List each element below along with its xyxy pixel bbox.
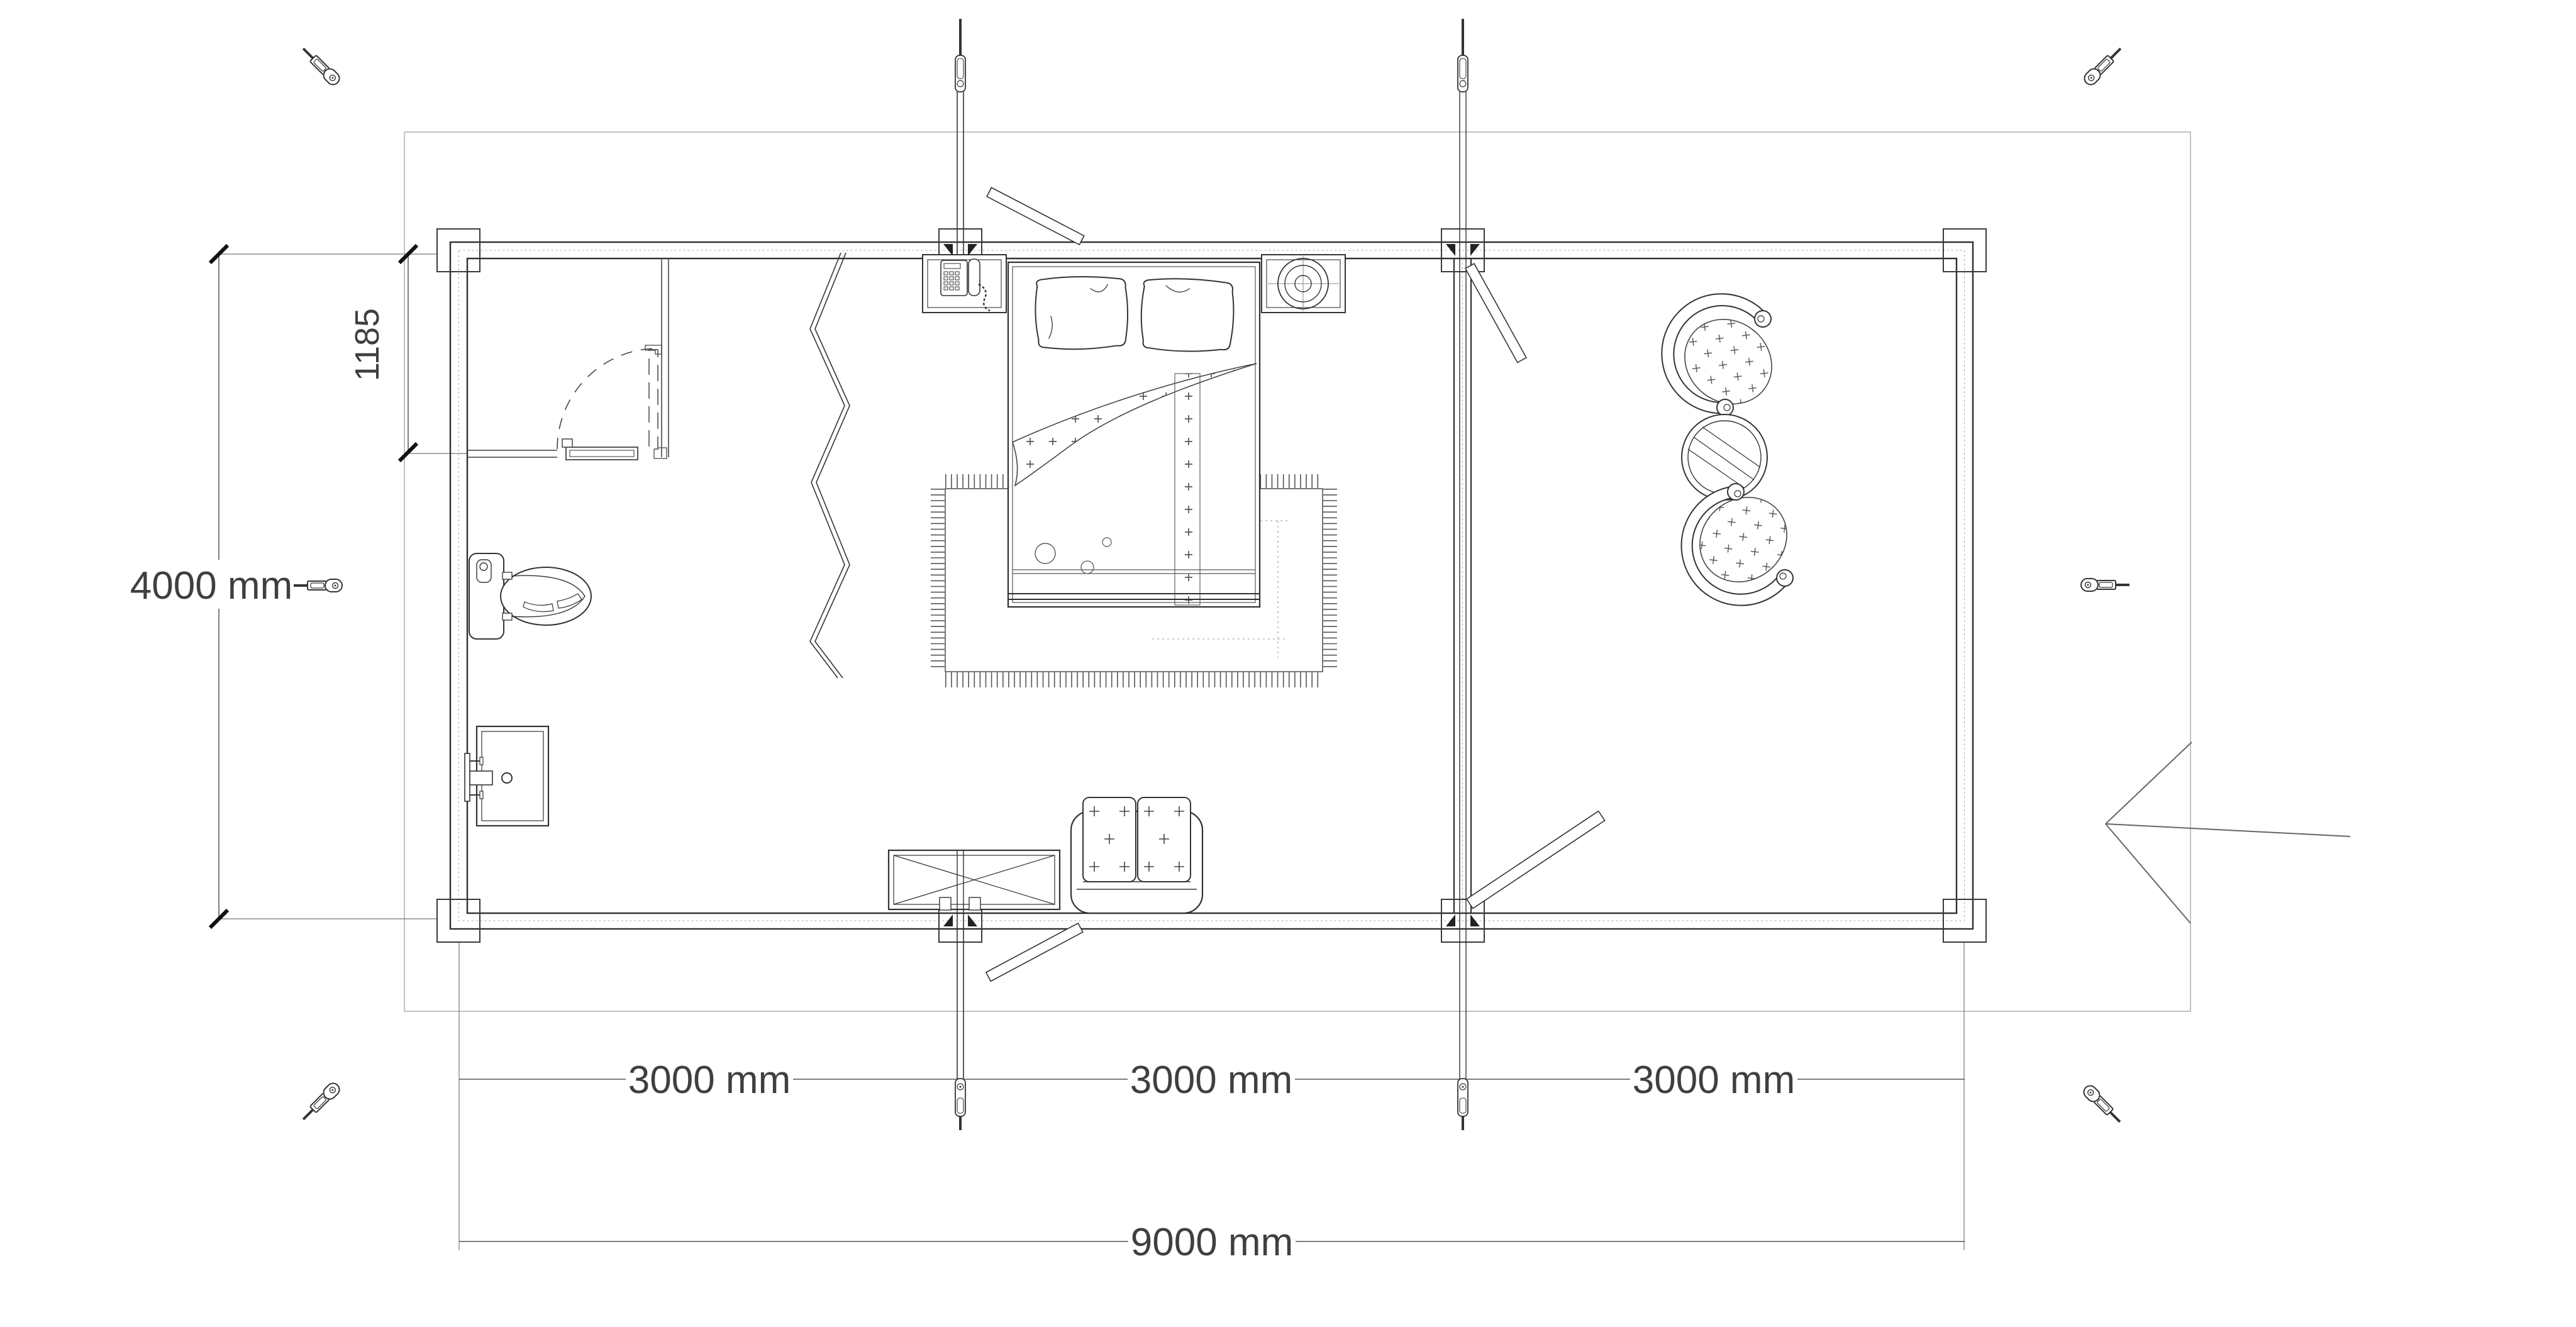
- door-leaf-top-exterior: [987, 187, 1084, 245]
- armchair-bottom: [1682, 480, 1804, 605]
- bathroom-door: [557, 345, 662, 460]
- dimension-labels: 4000 mm 1185 3000 mm 3000 mm 3000 mm 900…: [129, 308, 1797, 1265]
- folding-screen: [810, 253, 850, 678]
- turnbuckle-anchor-icon: [2081, 579, 2129, 591]
- turnbuckle-anchor-icon: [2082, 44, 2125, 87]
- nightstand-right: [1262, 255, 1345, 313]
- nightstand-left: [923, 255, 1006, 313]
- faucet-icon: [465, 753, 470, 801]
- pillow-right: [1141, 278, 1235, 352]
- sofa: [1071, 797, 1202, 913]
- dimension-1185: [399, 245, 467, 461]
- crossed-table: [889, 850, 1060, 910]
- entry-arrow-icon: [2106, 742, 2350, 923]
- storm-tie-rod-icon-left: [943, 19, 977, 1130]
- dimension-label-bay-2: 3000 mm: [1130, 1058, 1292, 1102]
- floor-plan-canvas: 4000 mm 1185 3000 mm 3000 mm 3000 mm 900…: [0, 0, 2576, 1327]
- door-leaf-partition-bottom: [1467, 811, 1605, 909]
- coffee-table: [1682, 414, 1767, 500]
- turnbuckle-anchor-icon: [299, 44, 342, 87]
- bathroom-walls: [467, 258, 669, 458]
- toilet: [469, 553, 591, 639]
- turnbuckle-anchor-icon: [299, 1080, 342, 1124]
- turnbuckle-anchor-icon: [2081, 1083, 2124, 1126]
- bed: [1008, 262, 1260, 607]
- floor-plan-page: 4000 mm 1185 3000 mm 3000 mm 3000 mm 900…: [0, 0, 2576, 1327]
- pillow-left: [1035, 275, 1129, 350]
- door-leaf-bottom-exterior: [986, 923, 1083, 981]
- dimension-label-height: 4000 mm: [130, 564, 292, 608]
- dimension-label-bath-offset: 1185: [348, 308, 386, 381]
- dimension-label-total-width: 9000 mm: [1131, 1221, 1293, 1264]
- dimension-label-bay-3: 3000 mm: [1633, 1058, 1795, 1102]
- storm-tie-rod-icon-right: [1446, 19, 1480, 1130]
- partition-wall: [1454, 258, 1471, 913]
- quilt-band: [1175, 374, 1200, 605]
- dimension-label-bay-1: 3000 mm: [628, 1058, 791, 1102]
- rod-wall-wedges: [943, 244, 977, 926]
- door-leaf-partition-top: [1465, 264, 1526, 362]
- armchair-top: [1662, 294, 1789, 421]
- sink: [465, 726, 548, 826]
- turnbuckle-anchor-icon: [294, 579, 342, 592]
